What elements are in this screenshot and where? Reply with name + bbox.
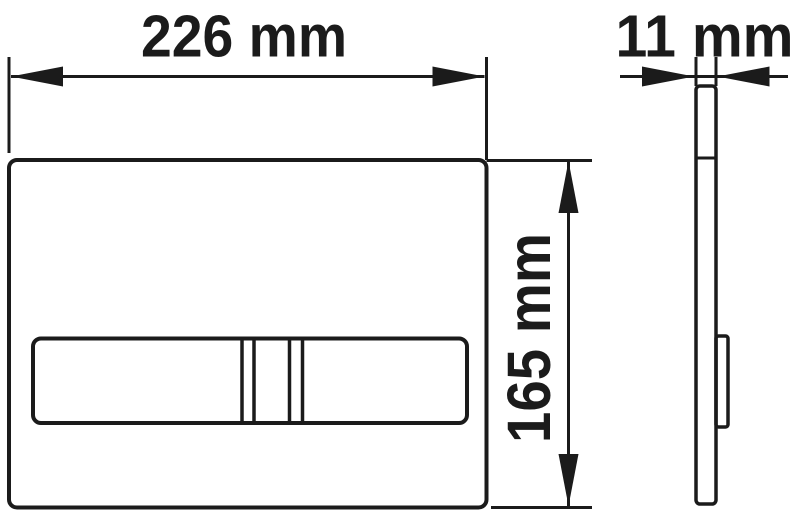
svg-text:165 mm: 165 mm [495, 233, 563, 443]
svg-text:226 mm: 226 mm [141, 4, 347, 70]
svg-text:11 mm: 11 mm [616, 4, 794, 70]
